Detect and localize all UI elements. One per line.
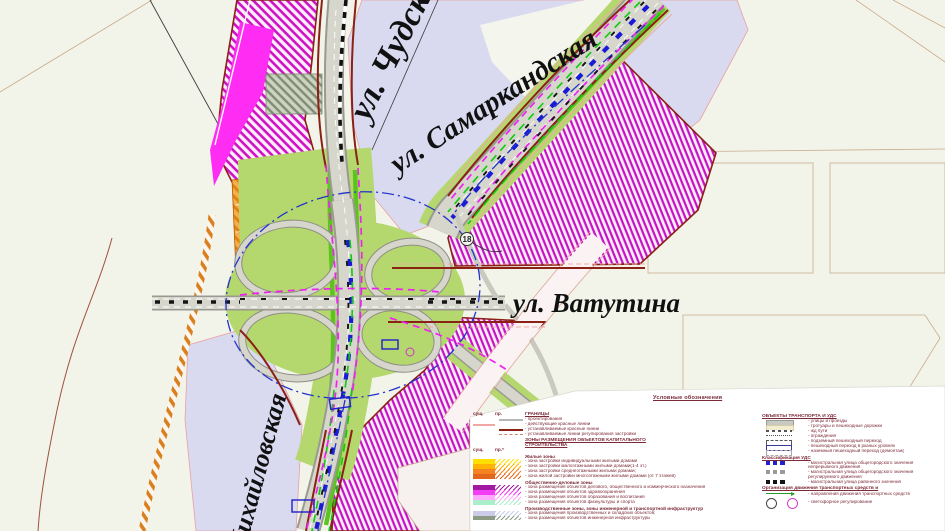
zones-column-headers: сущ. пр.*	[473, 448, 762, 453]
legend-title: Условные обозначения	[653, 395, 722, 401]
building-regulation-line-symbol	[473, 432, 525, 437]
district-street-symbol	[762, 480, 808, 485]
legend-item: - наземный пешеходный переход (демонтаж)	[762, 449, 945, 454]
regulated-main-street-symbol	[762, 470, 808, 475]
legend-item: - магистральная улица районного значения	[762, 480, 945, 485]
legend-right-column: ОБЪЕКТЫ ТРАНСПОРТА И УДС - улицы и проез…	[762, 414, 945, 508]
zone-item: - зона размещения объектов инженерной ин…	[473, 516, 762, 521]
traffic-signal-symbols	[762, 496, 808, 508]
engineering-zone-gray	[266, 74, 322, 114]
legend-item: - устанавливаемые линии регулирования за…	[473, 432, 762, 437]
plan-map-page: 18 ул. Чудская ул. Самаркандская ул. Ват…	[0, 0, 945, 531]
surface-crossing-symbol	[762, 449, 808, 454]
legend-item: - светофорное регулирование	[762, 496, 945, 508]
zone-item: - зона размещения объектов физкультуры и…	[473, 500, 762, 505]
continuous-main-street-symbol	[762, 461, 808, 466]
legend-left-column: сущ. пр. ГРАНИЦЫ - проектирования - дейс…	[473, 412, 762, 521]
legend-panel: Условные обозначения сущ. пр. ГРАНИЦЫ - …	[470, 386, 945, 531]
street-label-vatutina: ул. Ватутина	[510, 288, 680, 318]
zone-marker-18-label: 18	[463, 235, 472, 244]
legend-item: - магистральная улица общегородского зна…	[762, 470, 945, 480]
zone-item: - зона жилой застройки многоэтажными жил…	[473, 474, 762, 479]
